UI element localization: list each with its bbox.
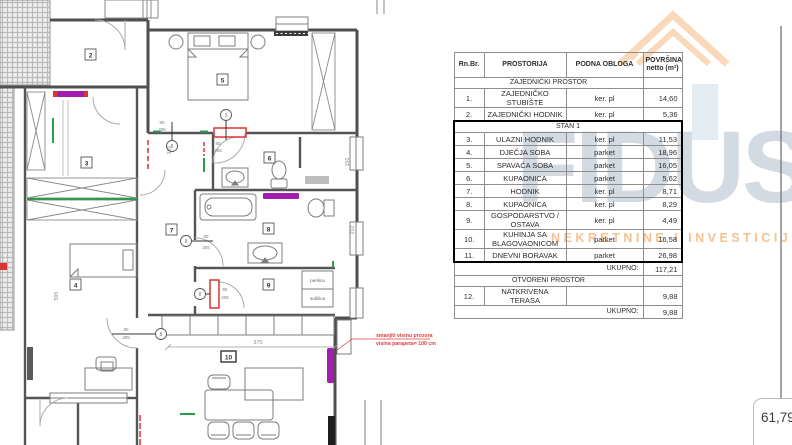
wardrobe-icons: [27, 33, 335, 220]
nightstand-icon: [169, 35, 183, 49]
svg-text:370: 370: [253, 340, 262, 346]
svg-text:8: 8: [185, 239, 188, 245]
svg-text:205: 205: [122, 335, 130, 340]
radiator-icon: [27, 347, 33, 380]
table-row: UKUPNO:117,21: [454, 262, 682, 276]
svg-text:80: 80: [124, 327, 129, 332]
door-arcs: [40, 20, 245, 426]
svg-text:7: 7: [170, 228, 174, 235]
kitchen-counter-icon: [162, 316, 334, 335]
area-note-value: 61,79: [761, 410, 792, 425]
svg-text:80: 80: [204, 234, 209, 239]
table-row: 10.KUHINJA SA BLAGOVAONICOMparket16,58: [454, 230, 682, 249]
double-bed-icon: [169, 33, 265, 100]
bath-mat-icon: [305, 176, 329, 184]
svg-text:visina parapeta= 100 cm: visina parapeta= 100 cm: [376, 341, 436, 347]
table-row: 8.KUPAONICAker. pl8,29: [454, 198, 682, 211]
table-row: 4.DJEČJA SOBAparket18,96: [454, 146, 682, 159]
dining-set-icon: [205, 368, 303, 439]
svg-text:205: 205: [158, 127, 166, 132]
svg-text:80: 80: [216, 141, 221, 146]
table-row: 5.SPAVAĆA SOBAparket16,05: [454, 159, 682, 172]
sink-icon: [222, 168, 248, 187]
toilet-icon: [308, 199, 334, 217]
table-row: UKUPNO:9,88: [454, 306, 682, 319]
table-row: 7.HODNIKker. pl8,71: [454, 185, 682, 198]
table-row: OTVORENI PROSTOR: [454, 276, 682, 287]
green-install-marks: [27, 118, 333, 414]
svg-text:6: 6: [268, 156, 272, 163]
svg-text:sušilica: sušilica: [310, 296, 326, 301]
svg-text:595: 595: [54, 292, 60, 301]
sink-icon: [248, 243, 282, 263]
header-room: PROSTORIJA: [484, 53, 566, 78]
table-row: ZAJEDNIČKI PROSTOR: [454, 78, 682, 89]
kitchen-vent-icon: [328, 416, 335, 445]
table-row: 6.KUPAONICAparket5,62: [454, 172, 682, 185]
room-area-table: Rn.Br. PROSTORIJA PODNA OBLOGA POVRŠINAn…: [453, 52, 683, 319]
svg-text:8: 8: [160, 332, 163, 338]
header-area: POVRŠINAnetto (m²): [643, 53, 682, 78]
toilet-icon: [271, 161, 287, 188]
table-row: 3.ULAZNI HODNIKker. pl11,53: [454, 133, 682, 146]
table-row: 2.ZAJEDNIČKI HODNIKker. pl5,36: [454, 108, 682, 122]
table-row: 1.ZAJEDNIČKO STUBIŠTEker. pl14,60: [454, 89, 682, 108]
table-row: 9.GOSPODARSTVO / OSTAVAker. pl4,49: [454, 211, 682, 230]
red-mark: [0, 263, 7, 270]
svg-text:210: 210: [350, 226, 356, 235]
svg-text:2: 2: [89, 53, 93, 60]
svg-text:8: 8: [199, 292, 202, 298]
svg-text:3: 3: [225, 113, 228, 119]
svg-text:4: 4: [74, 283, 78, 290]
svg-text:150: 150: [345, 158, 351, 167]
table-row: 11.DNEVNI BORAVAKparket26,98: [454, 249, 682, 263]
single-bed-icon: [70, 244, 137, 277]
desk-and-chair-icon: [85, 357, 132, 390]
table-row: STAN 1: [454, 121, 682, 133]
bathtub-icon: [200, 194, 256, 220]
svg-text:5: 5: [221, 78, 225, 85]
svg-text:10: 10: [225, 355, 233, 362]
table-row: 12.NATKRIVENA TERASA9,88: [454, 287, 682, 306]
svg-text:8: 8: [267, 227, 271, 234]
svg-text:9: 9: [267, 283, 271, 290]
svg-text:205: 205: [202, 245, 210, 250]
floor-plan-sheet: FIDUS NEKRETNINE I INVESTICIJE: [0, 0, 792, 445]
svg-text:320: 320: [167, 146, 173, 155]
svg-text:205: 205: [214, 148, 222, 153]
table-header-row: Rn.Br. PROSTORIJA PODNA OBLOGA POVRŠINAn…: [454, 53, 682, 78]
dimension-370: 370: [165, 340, 338, 350]
window-change-annotation: smanjiti visinu prozora visina parapeta=…: [337, 333, 436, 350]
svg-text:80: 80: [160, 120, 165, 125]
svg-text:3: 3: [85, 161, 89, 168]
area-note-box: 61,79: [753, 398, 792, 445]
inner-walls: [25, 87, 357, 445]
washer-dryer-icon: perilica sušilica: [302, 271, 333, 307]
header-num: Rn.Br.: [454, 53, 484, 78]
nightstand-icon: [251, 35, 265, 49]
svg-text:205: 205: [221, 295, 229, 300]
svg-text:smanjiti visinu prozora: smanjiti visinu prozora: [376, 333, 433, 339]
staircase-block: [105, 0, 384, 18]
svg-text:80: 80: [223, 287, 228, 292]
svg-text:perilica: perilica: [310, 278, 325, 283]
header-floor: PODNA OBLOGA: [566, 53, 643, 78]
